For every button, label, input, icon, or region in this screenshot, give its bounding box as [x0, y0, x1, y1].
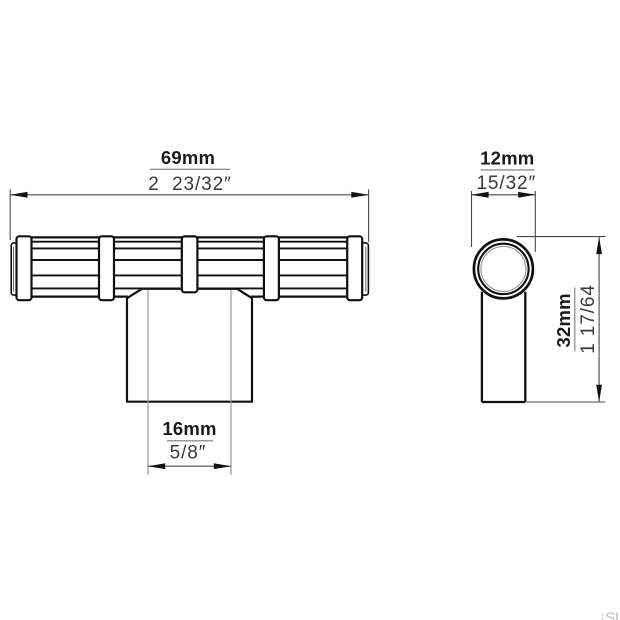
- svg-text:5/8″: 5/8″: [170, 443, 207, 464]
- svg-text:32mm: 32mm: [553, 293, 574, 347]
- svg-text:1 17/64: 1 17/64: [578, 284, 599, 354]
- svg-text:15/32″: 15/32″: [476, 173, 536, 194]
- svg-text:2 23/32″: 2 23/32″: [148, 174, 232, 195]
- svg-text:69mm: 69mm: [161, 147, 215, 168]
- svg-text:16mm: 16mm: [162, 418, 216, 439]
- svg-text:12mm: 12mm: [480, 148, 534, 169]
- svg-text:SU: SU: [606, 611, 620, 620]
